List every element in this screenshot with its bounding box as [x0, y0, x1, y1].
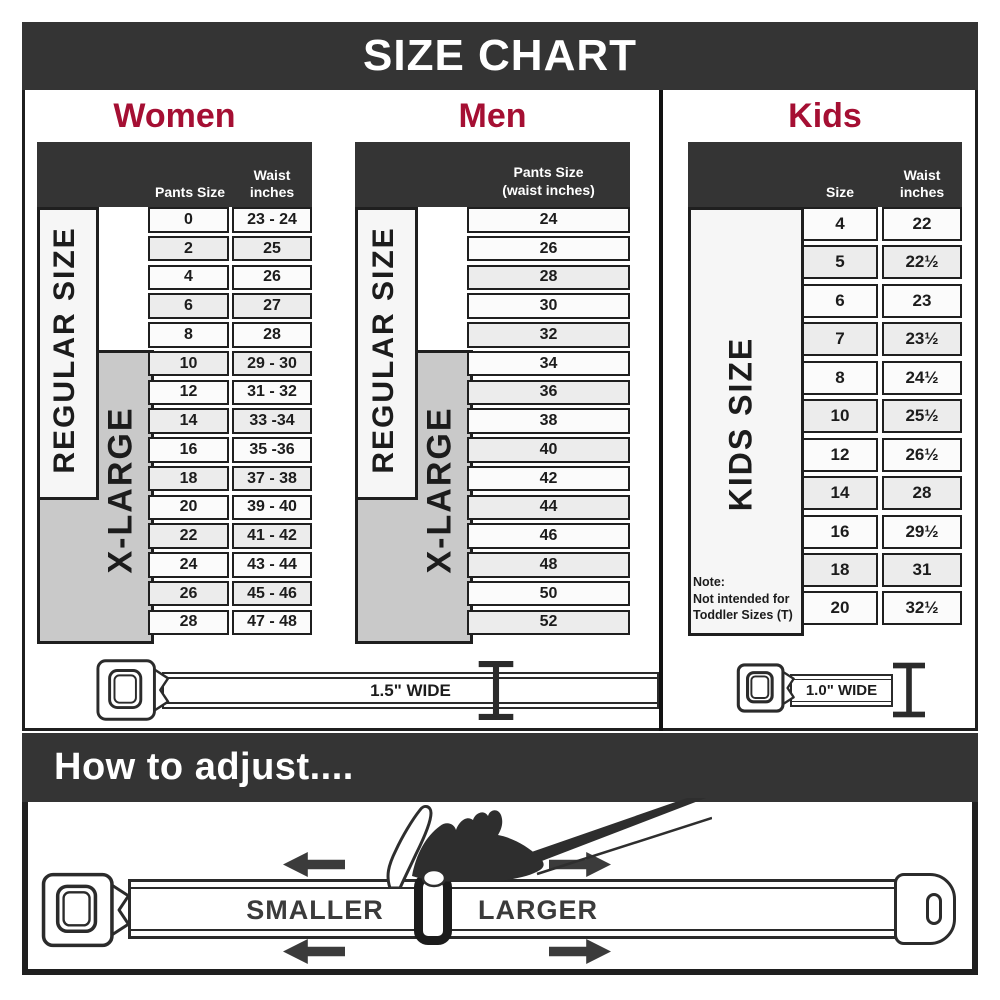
waist-inches-cell: 29½: [882, 515, 962, 549]
pants-size-cell: 48: [467, 552, 630, 578]
kids-table-row: 18 31: [802, 553, 962, 587]
women-table-header: Pants Size Waist inches: [37, 142, 312, 207]
waist-inches-cell: 37 - 38: [232, 466, 312, 492]
pants-size-cell: 42: [467, 466, 630, 492]
pants-size-cell: 2: [148, 236, 229, 262]
size-cell: 5: [802, 245, 878, 279]
larger-label: LARGER: [458, 894, 618, 926]
pants-size-cell: 38: [467, 408, 630, 434]
men-table-row: 38: [467, 408, 630, 434]
how-to-adjust-banner: How to adjust....: [22, 733, 978, 802]
women-table-row: 26 45 - 46: [148, 581, 312, 607]
women-table-row: 28 47 - 48: [148, 610, 312, 636]
women-table-row: 6 27: [148, 293, 312, 319]
women-table-row: 16 35 -36: [148, 437, 312, 463]
waist-inches-cell: 45 - 46: [232, 581, 312, 607]
waist-inches-cell: 31 - 32: [232, 380, 312, 406]
waist-inches-cell: 23: [882, 284, 962, 318]
waist-inches-cell: 26: [232, 265, 312, 291]
kids-table-row: 14 28: [802, 476, 962, 510]
waist-inches-cell: 32½: [882, 591, 962, 625]
men-table-row: 30: [467, 293, 630, 319]
pants-size-cell: 26: [467, 236, 630, 262]
seatbelt-buckle-icon: [40, 871, 132, 949]
women-table-row: 4 26: [148, 265, 312, 291]
kids-table-row: 8 24½: [802, 361, 962, 395]
kids-belt-width-label: 1.0" WIDE: [792, 676, 891, 705]
pants-size-cell: 14: [148, 408, 229, 434]
pants-size-cell: 44: [467, 495, 630, 521]
men-table-row: 28: [467, 265, 630, 291]
men-table-row: 26: [467, 236, 630, 262]
men-table-row: 32: [467, 322, 630, 348]
women-xlarge-label: X-LARGE: [102, 407, 141, 574]
pants-size-cell: 0: [148, 207, 229, 233]
pants-size-cell: 22: [148, 523, 229, 549]
pants-size-cell: 36: [467, 380, 630, 406]
pants-size-cell: 12: [148, 380, 229, 406]
women-regular-size-label: REGULAR SIZE: [48, 226, 82, 473]
men-table-row: 24: [467, 207, 630, 233]
pants-size-cell: 8: [148, 322, 229, 348]
kids-table-row: 4 22: [802, 207, 962, 241]
size-cell: 10: [802, 399, 878, 433]
width-marker-icon: [478, 661, 514, 720]
pants-size-cell: 10: [148, 351, 229, 377]
kids-table-header: Size Waist inches: [688, 142, 962, 207]
waist-inches-cell: 47 - 48: [232, 610, 312, 636]
seatbelt-buckle-icon: [95, 657, 171, 723]
panel-divider: [659, 90, 663, 731]
kids-table-row: 6 23: [802, 284, 962, 318]
size-cell: 20: [802, 591, 878, 625]
men-section-title: Men: [355, 94, 630, 138]
women-table-rows: 0 23 - 24 2 25 4 26 6 27 8 28: [148, 207, 312, 638]
kids-note: Note: Not intended for Toddler Sizes (T): [693, 574, 799, 624]
size-chart-page: { "header": { "title": "SIZE CHART" }, "…: [0, 0, 1000, 1000]
pants-size-cell: 24: [148, 552, 229, 578]
waist-inches-cell: 43 - 44: [232, 552, 312, 578]
waist-inches-cell: 35 -36: [232, 437, 312, 463]
kids-size-label: KIDS SIZE: [723, 337, 760, 511]
kids-table-row: 16 29½: [802, 515, 962, 549]
waist-inches-cell: 33 -34: [232, 408, 312, 434]
size-cell: 7: [802, 322, 878, 356]
size-cell: 4: [802, 207, 878, 241]
women-table-row: 12 31 - 32: [148, 380, 312, 406]
waist-inches-cell: 28: [882, 476, 962, 510]
pants-size-cell: 16: [148, 437, 229, 463]
smaller-label: SMALLER: [230, 894, 400, 926]
waist-inches-cell: 31: [882, 553, 962, 587]
waist-inches-cell: 29 - 30: [232, 351, 312, 377]
waist-inches-cell: 28: [232, 322, 312, 348]
kids-table-rows: 4 22 5 22½ 6 23 7 23½ 8 24½: [802, 207, 962, 630]
waist-inches-cell: 23½: [882, 322, 962, 356]
men-size-table: Pants Size (waist inches) REGULAR SIZE X…: [355, 142, 630, 638]
pants-size-cell: 50: [467, 581, 630, 607]
waist-inches-cell: 22½: [882, 245, 962, 279]
kids-table-row: 10 25½: [802, 399, 962, 433]
pants-size-cell: 28: [148, 610, 229, 636]
women-col-pants-size: Pants Size: [148, 184, 232, 201]
waist-inches-cell: 24½: [882, 361, 962, 395]
kids-table-row: 12 26½: [802, 438, 962, 472]
pants-size-cell: 32: [467, 322, 630, 348]
women-table-row: 18 37 - 38: [148, 466, 312, 492]
women-table-row: 20 39 - 40: [148, 495, 312, 521]
pants-size-cell: 4: [148, 265, 229, 291]
pants-size-cell: 46: [467, 523, 630, 549]
pants-size-cell: 20: [148, 495, 229, 521]
men-table-row: 36: [467, 380, 630, 406]
kids-belt-strap: 1.0" WIDE: [790, 674, 893, 707]
size-cell: 16: [802, 515, 878, 549]
adult-belt-width-label: 1.5" WIDE: [164, 674, 657, 707]
waist-inches-cell: 22: [882, 207, 962, 241]
pants-size-cell: 6: [148, 293, 229, 319]
waist-inches-cell: 23 - 24: [232, 207, 312, 233]
pants-size-cell: 30: [467, 293, 630, 319]
women-col-waist: Waist inches: [232, 167, 312, 201]
pants-size-cell: 24: [467, 207, 630, 233]
pants-size-cell: 18: [148, 466, 229, 492]
waist-inches-cell: 25: [232, 236, 312, 262]
men-table-header: Pants Size (waist inches): [355, 142, 630, 207]
women-table-row: 2 25: [148, 236, 312, 262]
men-table-row: 52: [467, 610, 630, 636]
hand-pull-icon: [382, 796, 712, 888]
men-table-row: 42: [467, 466, 630, 492]
women-table-row: 8 28: [148, 322, 312, 348]
size-cell: 14: [802, 476, 878, 510]
waist-inches-cell: 27: [232, 293, 312, 319]
waist-inches-cell: 26½: [882, 438, 962, 472]
width-marker-icon: [893, 661, 925, 719]
women-table-row: 24 43 - 44: [148, 552, 312, 578]
men-xlarge-label: X-LARGE: [421, 407, 460, 574]
women-table-row: 22 41 - 42: [148, 523, 312, 549]
kids-table-row: 5 22½: [802, 245, 962, 279]
men-table-row: 48: [467, 552, 630, 578]
waist-inches-cell: 25½: [882, 399, 962, 433]
pants-size-cell: 40: [467, 437, 630, 463]
size-cell: 8: [802, 361, 878, 395]
women-section-title: Women: [37, 94, 312, 138]
men-regular-size-label: REGULAR SIZE: [367, 226, 401, 473]
kids-table-row: 7 23½: [802, 322, 962, 356]
seatbelt-buckle-icon: [736, 662, 796, 714]
adult-belt-strap: 1.5" WIDE: [162, 672, 659, 709]
belt-tip-slot: [926, 893, 942, 925]
size-chart-banner: SIZE CHART: [22, 22, 978, 90]
how-to-adjust-title: How to adjust....: [54, 746, 354, 789]
size-cell: 6: [802, 284, 878, 318]
men-table-row: 34: [467, 351, 630, 377]
size-cell: 18: [802, 553, 878, 587]
waist-inches-cell: 39 - 40: [232, 495, 312, 521]
kids-size-table: Size Waist inches KIDS SIZE Note: Not in…: [688, 142, 962, 630]
pants-size-cell: 28: [467, 265, 630, 291]
men-table-row: 44: [467, 495, 630, 521]
size-cell: 12: [802, 438, 878, 472]
pants-size-cell: 26: [148, 581, 229, 607]
pants-size-cell: 34: [467, 351, 630, 377]
women-size-table: Pants Size Waist inches REGULAR SIZE X-L…: [37, 142, 312, 638]
men-table-row: 40: [467, 437, 630, 463]
men-table-row: 46: [467, 523, 630, 549]
women-table-row: 10 29 - 30: [148, 351, 312, 377]
kids-col-size: Size: [802, 184, 878, 201]
pants-size-cell: 52: [467, 610, 630, 636]
men-col-pants-size: Pants Size (waist inches): [467, 163, 630, 199]
waist-inches-cell: 41 - 42: [232, 523, 312, 549]
kids-col-waist: Waist inches: [882, 167, 962, 201]
kids-section-title: Kids: [688, 94, 962, 138]
women-table-row: 14 33 -34: [148, 408, 312, 434]
page-title: SIZE CHART: [363, 31, 637, 81]
kids-table-row: 20 32½: [802, 591, 962, 625]
women-table-row: 0 23 - 24: [148, 207, 312, 233]
belt-tip: [894, 873, 956, 945]
men-table-rows: 24 26 28 30 32 34 36: [467, 207, 630, 638]
men-table-row: 50: [467, 581, 630, 607]
